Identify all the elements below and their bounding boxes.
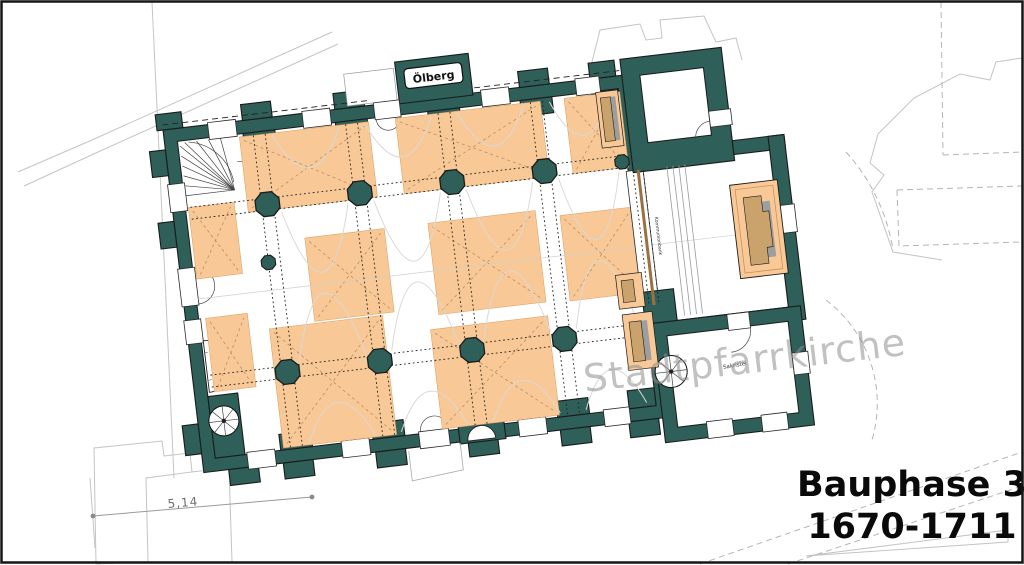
north-porch-outline <box>344 68 397 106</box>
south-porch-outline <box>409 443 464 481</box>
church-plan: Ölberg <box>142 17 821 507</box>
north-tower <box>620 47 737 173</box>
phase-title-line1: Bauphase 3 <box>797 465 1024 505</box>
floorplan-drawing: Ölberg <box>0 0 1024 565</box>
kommunionbank-label: Kommunionbank <box>653 217 664 256</box>
oelberg-chapel: Ölberg <box>395 53 473 103</box>
plan-canvas: Ölberg <box>0 0 1024 565</box>
dimension-annotation: 5,14 <box>91 494 315 518</box>
phase-title-line2: 1670-1711 <box>807 507 1016 547</box>
dimension-label: 5,14 <box>167 494 199 511</box>
phase-title: Bauphase 3 1670-1711 <box>797 465 1024 547</box>
